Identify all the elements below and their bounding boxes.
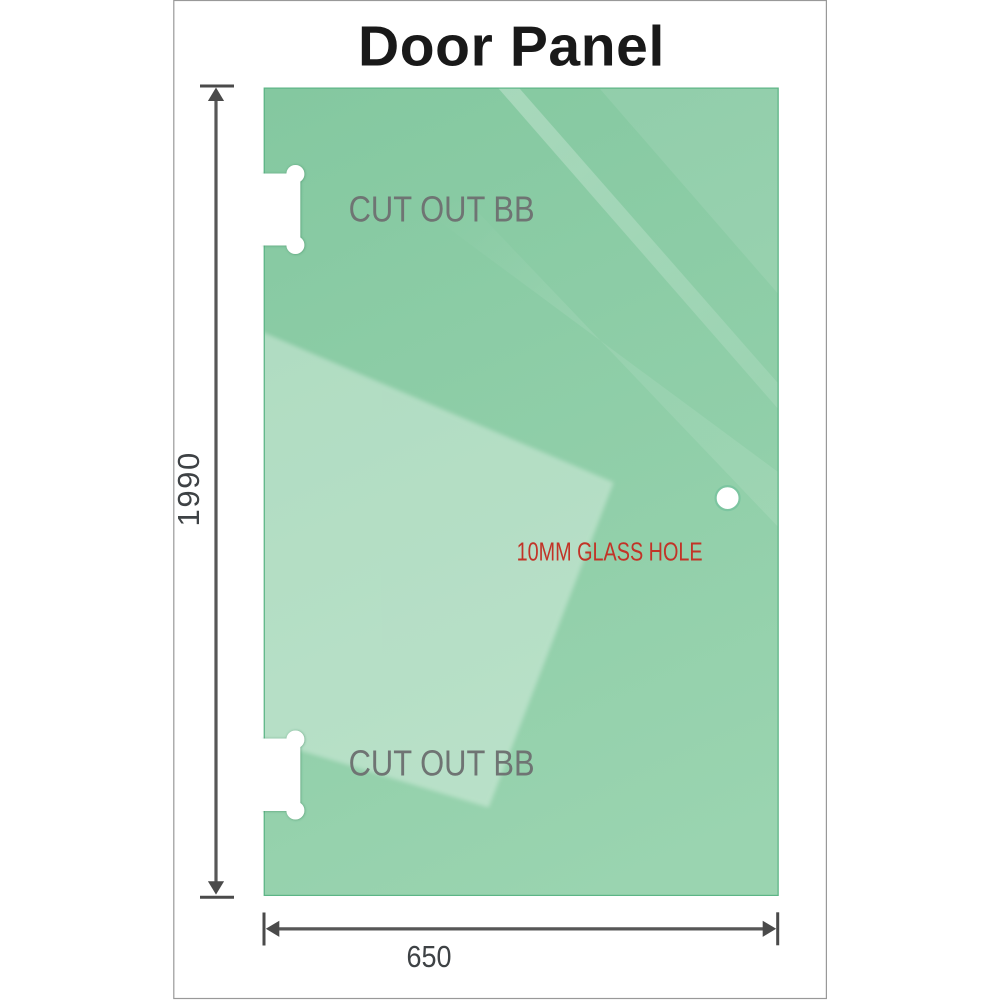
- svg-text:650: 650: [407, 939, 452, 974]
- svg-text:1990: 1990: [171, 451, 206, 526]
- svg-text:10MM GLASS HOLE: 10MM GLASS HOLE: [517, 536, 703, 566]
- svg-text:Door Panel: Door Panel: [358, 15, 665, 79]
- svg-text:CUT OUT BB: CUT OUT BB: [349, 742, 535, 783]
- svg-text:CUT OUT BB: CUT OUT BB: [349, 189, 535, 230]
